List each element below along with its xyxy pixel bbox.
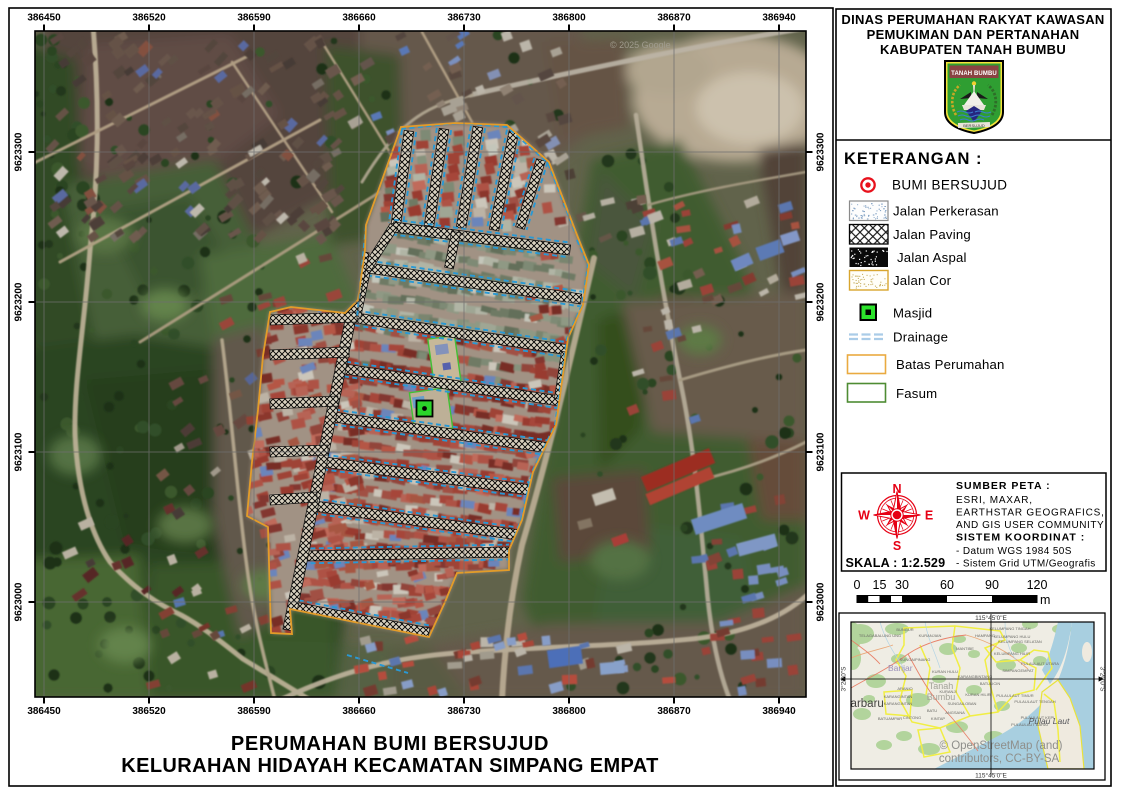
svg-text:0: 0: [854, 578, 861, 592]
svg-text:SUMBER PETA :: SUMBER PETA :: [956, 480, 1051, 492]
svg-text:9623300: 9623300: [816, 132, 827, 171]
svg-text:Drainage: Drainage: [893, 330, 948, 345]
svg-text:MANTIBE: MANTIBE: [956, 646, 974, 651]
svg-text:SIMPANGEMPAT: SIMPANGEMPAT: [1002, 668, 1034, 673]
svg-text:386800: 386800: [552, 13, 586, 24]
svg-text:KELURAHAN HIDAYAH KECAMATAN SI: KELURAHAN HIDAYAH KECAMATAN SIMPANG EMPA…: [121, 755, 659, 777]
svg-text:N: N: [892, 482, 901, 496]
svg-text:BATULICIN: BATULICIN: [980, 681, 1001, 686]
svg-text:BATU: BATU: [927, 708, 937, 713]
svg-text:ANGSANA: ANGSANA: [945, 710, 965, 715]
svg-text:386520: 386520: [132, 706, 166, 717]
svg-text:3°20'0"S: 3°20'0"S: [1099, 667, 1107, 693]
svg-text:BUNGUR: BUNGUR: [896, 627, 913, 632]
svg-text:KELUMPANG TINGAH: KELUMPANG TINGAH: [990, 626, 1031, 631]
svg-text:386520: 386520: [132, 13, 166, 24]
svg-text:386870: 386870: [657, 706, 691, 717]
svg-text:Jalan Aspal: Jalan Aspal: [897, 250, 967, 265]
svg-text:9623000: 9623000: [816, 582, 827, 621]
svg-text:E: E: [925, 509, 933, 523]
svg-text:9623300: 9623300: [14, 132, 25, 171]
svg-text:30: 30: [895, 578, 909, 592]
svg-text:BUMI BERSUJUD: BUMI BERSUJUD: [892, 178, 1007, 193]
svg-text:KELUMPANG HILIR: KELUMPANG HILIR: [994, 651, 1030, 656]
svg-text:ARANIO: ARANIO: [897, 686, 912, 691]
svg-text:© OpenStreetMap (and): © OpenStreetMap (and): [940, 740, 1063, 752]
svg-text:KURANJIAN: KURANJIAN: [919, 633, 942, 638]
svg-text:386940: 386940: [762, 13, 796, 24]
svg-text:Jalan Cor: Jalan Cor: [893, 273, 952, 288]
svg-text:9623200: 9623200: [816, 282, 827, 321]
svg-text:DINAS PERUMAHAN RAKYAT KAWASAN: DINAS PERUMAHAN RAKYAT KAWASAN: [841, 12, 1104, 27]
svg-text:9623100: 9623100: [816, 432, 827, 471]
svg-text:9623100: 9623100: [14, 432, 25, 471]
svg-text:Bumbu: Bumbu: [927, 692, 956, 702]
svg-text:- Datum WGS 1984 50S: - Datum WGS 1984 50S: [956, 546, 1072, 557]
svg-text:115°45'0"E: 115°45'0"E: [975, 614, 1007, 622]
svg-text:386870: 386870: [657, 13, 691, 24]
svg-text:KURAN HILIR: KURAN HILIR: [965, 692, 990, 697]
svg-text:Batas Perumahan: Batas Perumahan: [896, 357, 1005, 372]
svg-text:TANAH BUMBU: TANAH BUMBU: [951, 71, 997, 77]
svg-text:386590: 386590: [237, 706, 271, 717]
svg-text:PULAULAUT UTARA: PULAULAUT UTARA: [1021, 661, 1059, 666]
svg-text:PULAULAUT TIMUR: PULAULAUT TIMUR: [996, 693, 1033, 698]
svg-text:386450: 386450: [27, 706, 61, 717]
svg-text:TELAGABALUNG UNG: TELAGABALUNG UNG: [859, 633, 901, 638]
svg-text:9623200: 9623200: [14, 282, 25, 321]
svg-text:386450: 386450: [27, 13, 61, 24]
svg-text:15: 15: [873, 578, 887, 592]
svg-text:KARANGINTAN: KARANGINTAN: [884, 701, 913, 706]
svg-text:90: 90: [985, 578, 999, 592]
svg-text:Masjid: Masjid: [893, 306, 932, 321]
svg-text:Pulau Laut: Pulau Laut: [1029, 716, 1070, 726]
svg-text:386660: 386660: [342, 13, 376, 24]
svg-text:KINTAP: KINTAP: [931, 716, 945, 721]
svg-text:KURAN HULU: KURAN HULU: [932, 669, 958, 674]
svg-text:jarbaru: jarbaru: [847, 698, 884, 710]
svg-text:KETERANGAN :: KETERANGAN :: [844, 150, 983, 168]
svg-text:HAMPANG: HAMPANG: [975, 633, 995, 638]
svg-text:BERSUJUD: BERSUJUD: [963, 123, 985, 128]
svg-text:contributors, CC-BY-SA: contributors, CC-BY-SA: [939, 753, 1060, 765]
svg-text:386730: 386730: [447, 706, 481, 717]
svg-text:Banjar: Banjar: [888, 663, 913, 673]
svg-text:ESRI, MAXAR,: ESRI, MAXAR,: [956, 495, 1033, 506]
svg-text:PERUMAHAN BUMI BERSUJUD: PERUMAHAN BUMI BERSUJUD: [231, 733, 549, 755]
svg-text:SKALA : 1:2.529: SKALA : 1:2.529: [846, 556, 946, 570]
svg-text:Jalan Paving: Jalan Paving: [893, 227, 971, 242]
svg-text:SISTEM KOORDINAT :: SISTEM KOORDINAT :: [956, 532, 1085, 544]
svg-text:- Sistem Grid UTM/Geografis: - Sistem Grid UTM/Geografis: [956, 559, 1096, 570]
svg-text:386730: 386730: [447, 13, 481, 24]
svg-text:AND GIS USER COMMUNITY: AND GIS USER COMMUNITY: [956, 520, 1104, 531]
svg-text:KELUMPANG SELATAN: KELUMPANG SELATAN: [998, 639, 1042, 644]
svg-text:KARANGINTAN: KARANGINTAN: [884, 694, 913, 699]
svg-text:PULAULAUT TENGAH: PULAULAUT TENGAH: [1014, 699, 1055, 704]
svg-text:W: W: [858, 509, 870, 523]
svg-text:60: 60: [940, 578, 954, 592]
svg-text:KARANGBINTANG: KARANGBINTANG: [958, 674, 992, 679]
svg-text:BATUAMPAR: BATUAMPAR: [878, 716, 902, 721]
svg-text:Tanah: Tanah: [929, 681, 954, 691]
svg-text:KABUPATEN TANAH BUMBU: KABUPATEN TANAH BUMBU: [880, 42, 1066, 57]
svg-text:PEMUKIMAN DAN PERTANAHAN: PEMUKIMAN DAN PERTANAHAN: [867, 27, 1080, 42]
svg-text:S: S: [893, 539, 901, 553]
svg-text:EARTHSTAR GEOGRAFICS,: EARTHSTAR GEOGRAFICS,: [956, 508, 1105, 519]
svg-text:386940: 386940: [762, 706, 796, 717]
svg-text:120: 120: [1027, 578, 1048, 592]
svg-text:386800: 386800: [552, 706, 586, 717]
svg-text:Jalan Perkerasan: Jalan Perkerasan: [893, 204, 999, 219]
svg-text:115°45'0"E: 115°45'0"E: [975, 772, 1007, 780]
svg-text:Fasum: Fasum: [896, 386, 937, 401]
svg-text:386660: 386660: [342, 706, 376, 717]
svg-text:9623000: 9623000: [14, 582, 25, 621]
svg-text:m: m: [1040, 593, 1050, 607]
svg-text:CINTONG: CINTONG: [903, 715, 921, 720]
svg-text:3°20'0"S: 3°20'0"S: [840, 666, 848, 692]
svg-text:386590: 386590: [237, 13, 271, 24]
svg-text:SUNGAIPINANG: SUNGAIPINANG: [900, 657, 931, 662]
